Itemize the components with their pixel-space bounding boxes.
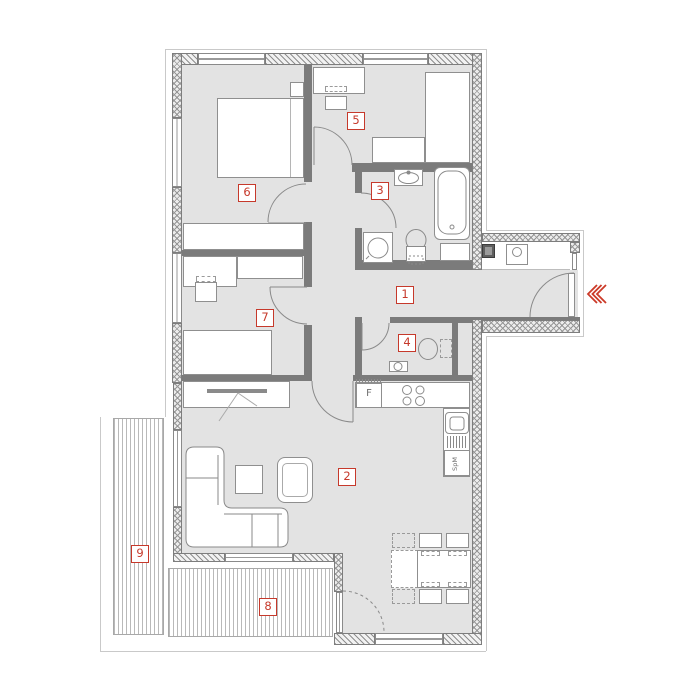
wardrobe-room5	[425, 72, 470, 163]
wall-south-seg2	[293, 553, 334, 562]
room-3-badge: 3	[371, 182, 389, 200]
nightstand	[290, 82, 304, 97]
wall-bottom-seg1	[334, 633, 375, 645]
wall-bath-hall-upper	[355, 165, 362, 193]
room-1-badge: 1	[396, 286, 414, 304]
dining-chair	[419, 533, 442, 548]
chair-mark-room5	[325, 86, 347, 92]
hallway-floor-horizontal	[355, 270, 578, 317]
bath-cabinet	[440, 243, 470, 261]
window-terrace-side	[336, 592, 343, 633]
room-9-badge: 9	[131, 545, 149, 563]
wall-entrance-corner	[570, 242, 580, 253]
kitchen-sink	[445, 412, 469, 434]
window-living-south	[225, 553, 293, 562]
chair-tuck-mark	[448, 582, 467, 587]
window-room5-top	[363, 53, 428, 65]
entrance-arrow-icon	[588, 285, 606, 303]
sill-line-right-lower	[486, 337, 487, 651]
intercom-box	[506, 244, 528, 265]
dining-chair	[446, 589, 469, 604]
boundary-line-bottom	[100, 651, 486, 652]
wall-wc-north	[390, 317, 472, 323]
wall-entrance-south	[482, 320, 580, 333]
window-dining-bottom	[375, 633, 443, 645]
chair-room5	[325, 96, 347, 110]
wall-south-corner	[334, 553, 343, 592]
wall-left-seg4	[173, 383, 182, 430]
window-room7-left	[172, 253, 182, 323]
dishwasher: SpM	[444, 450, 470, 476]
wall-entrance-north	[482, 233, 580, 242]
wc-sink	[389, 361, 408, 372]
dresser-room6	[183, 223, 304, 250]
wc-cistern	[440, 339, 452, 358]
room-4-badge: 4	[398, 334, 416, 352]
window-room6-top	[198, 53, 265, 65]
fridge: F	[356, 383, 382, 408]
chair-room7	[195, 282, 217, 302]
wall-room7-hall-lower	[304, 325, 312, 381]
hallway-floor-vertical	[312, 163, 355, 375]
bed-double	[217, 98, 304, 178]
dining-chair-optional	[392, 589, 415, 604]
wall-left-seg2	[172, 187, 182, 253]
wall-top-seg2	[265, 53, 363, 65]
wall-wc-west	[355, 317, 362, 381]
sill-line-ext-top	[486, 230, 583, 231]
floor-plan: F SpM	[0, 0, 700, 700]
room-2-badge: 2	[338, 468, 356, 486]
sill-line-right-upper	[486, 49, 487, 231]
dining-chair	[419, 589, 442, 604]
door-gap-bath	[355, 193, 362, 228]
wall-room7-hall-upper	[304, 256, 312, 287]
wall-room6-hall	[304, 222, 312, 250]
tv-bar	[207, 389, 267, 393]
sill-line-ext-bottom	[486, 336, 583, 337]
room-8-badge: 8	[259, 598, 277, 616]
wall-room6-room5	[304, 65, 312, 182]
window-room6-left	[172, 118, 182, 187]
wall-south-seg1	[173, 553, 225, 562]
wall-left-seg3	[172, 323, 182, 383]
wall-left-seg1	[172, 53, 182, 118]
tv-sideboard	[183, 381, 290, 408]
room-6-badge: 6	[238, 184, 256, 202]
bathtub	[434, 167, 470, 240]
wall-right-lower	[472, 317, 482, 645]
door-gap-wc	[362, 317, 390, 323]
dining-table-extension	[391, 550, 418, 588]
terrace-9-deck	[113, 418, 164, 635]
door-gap-living	[307, 375, 353, 381]
chair-tuck-mark	[448, 551, 467, 556]
washing-machine	[363, 232, 393, 263]
fridge-label: F	[357, 388, 381, 399]
shaft-box-inner	[485, 247, 492, 255]
boundary-line-left	[100, 417, 101, 652]
entrance-door-leaf	[568, 273, 575, 317]
coffee-table	[235, 465, 263, 494]
wall-wc-shaft	[452, 323, 458, 377]
wall-right-upper	[472, 53, 482, 270]
chair-tuck-mark	[421, 551, 440, 556]
sill-line-top	[165, 49, 486, 50]
dresser-room5	[372, 137, 425, 163]
chair-tuck-mark	[421, 582, 440, 587]
room-5-badge: 5	[347, 112, 365, 130]
sill-line-left	[165, 49, 166, 417]
door-gap-room6	[304, 182, 312, 222]
bath-sink	[394, 169, 423, 186]
dining-chair	[446, 533, 469, 548]
armchair-cushion	[282, 463, 308, 497]
wall-bottom-seg2	[443, 633, 482, 645]
sill-line-ext-right	[583, 230, 584, 337]
entrance-sidelight-window	[572, 253, 577, 270]
bed-single	[183, 330, 272, 375]
dining-chair-optional	[392, 533, 415, 548]
door-gap-room7	[304, 287, 312, 325]
sideboard-room7	[237, 256, 303, 279]
dish-rack	[447, 436, 467, 448]
window-living-left	[173, 430, 182, 507]
dishwasher-label: SpM	[451, 452, 459, 476]
room-7-badge: 7	[256, 309, 274, 327]
terrace-8-deck	[168, 568, 333, 637]
